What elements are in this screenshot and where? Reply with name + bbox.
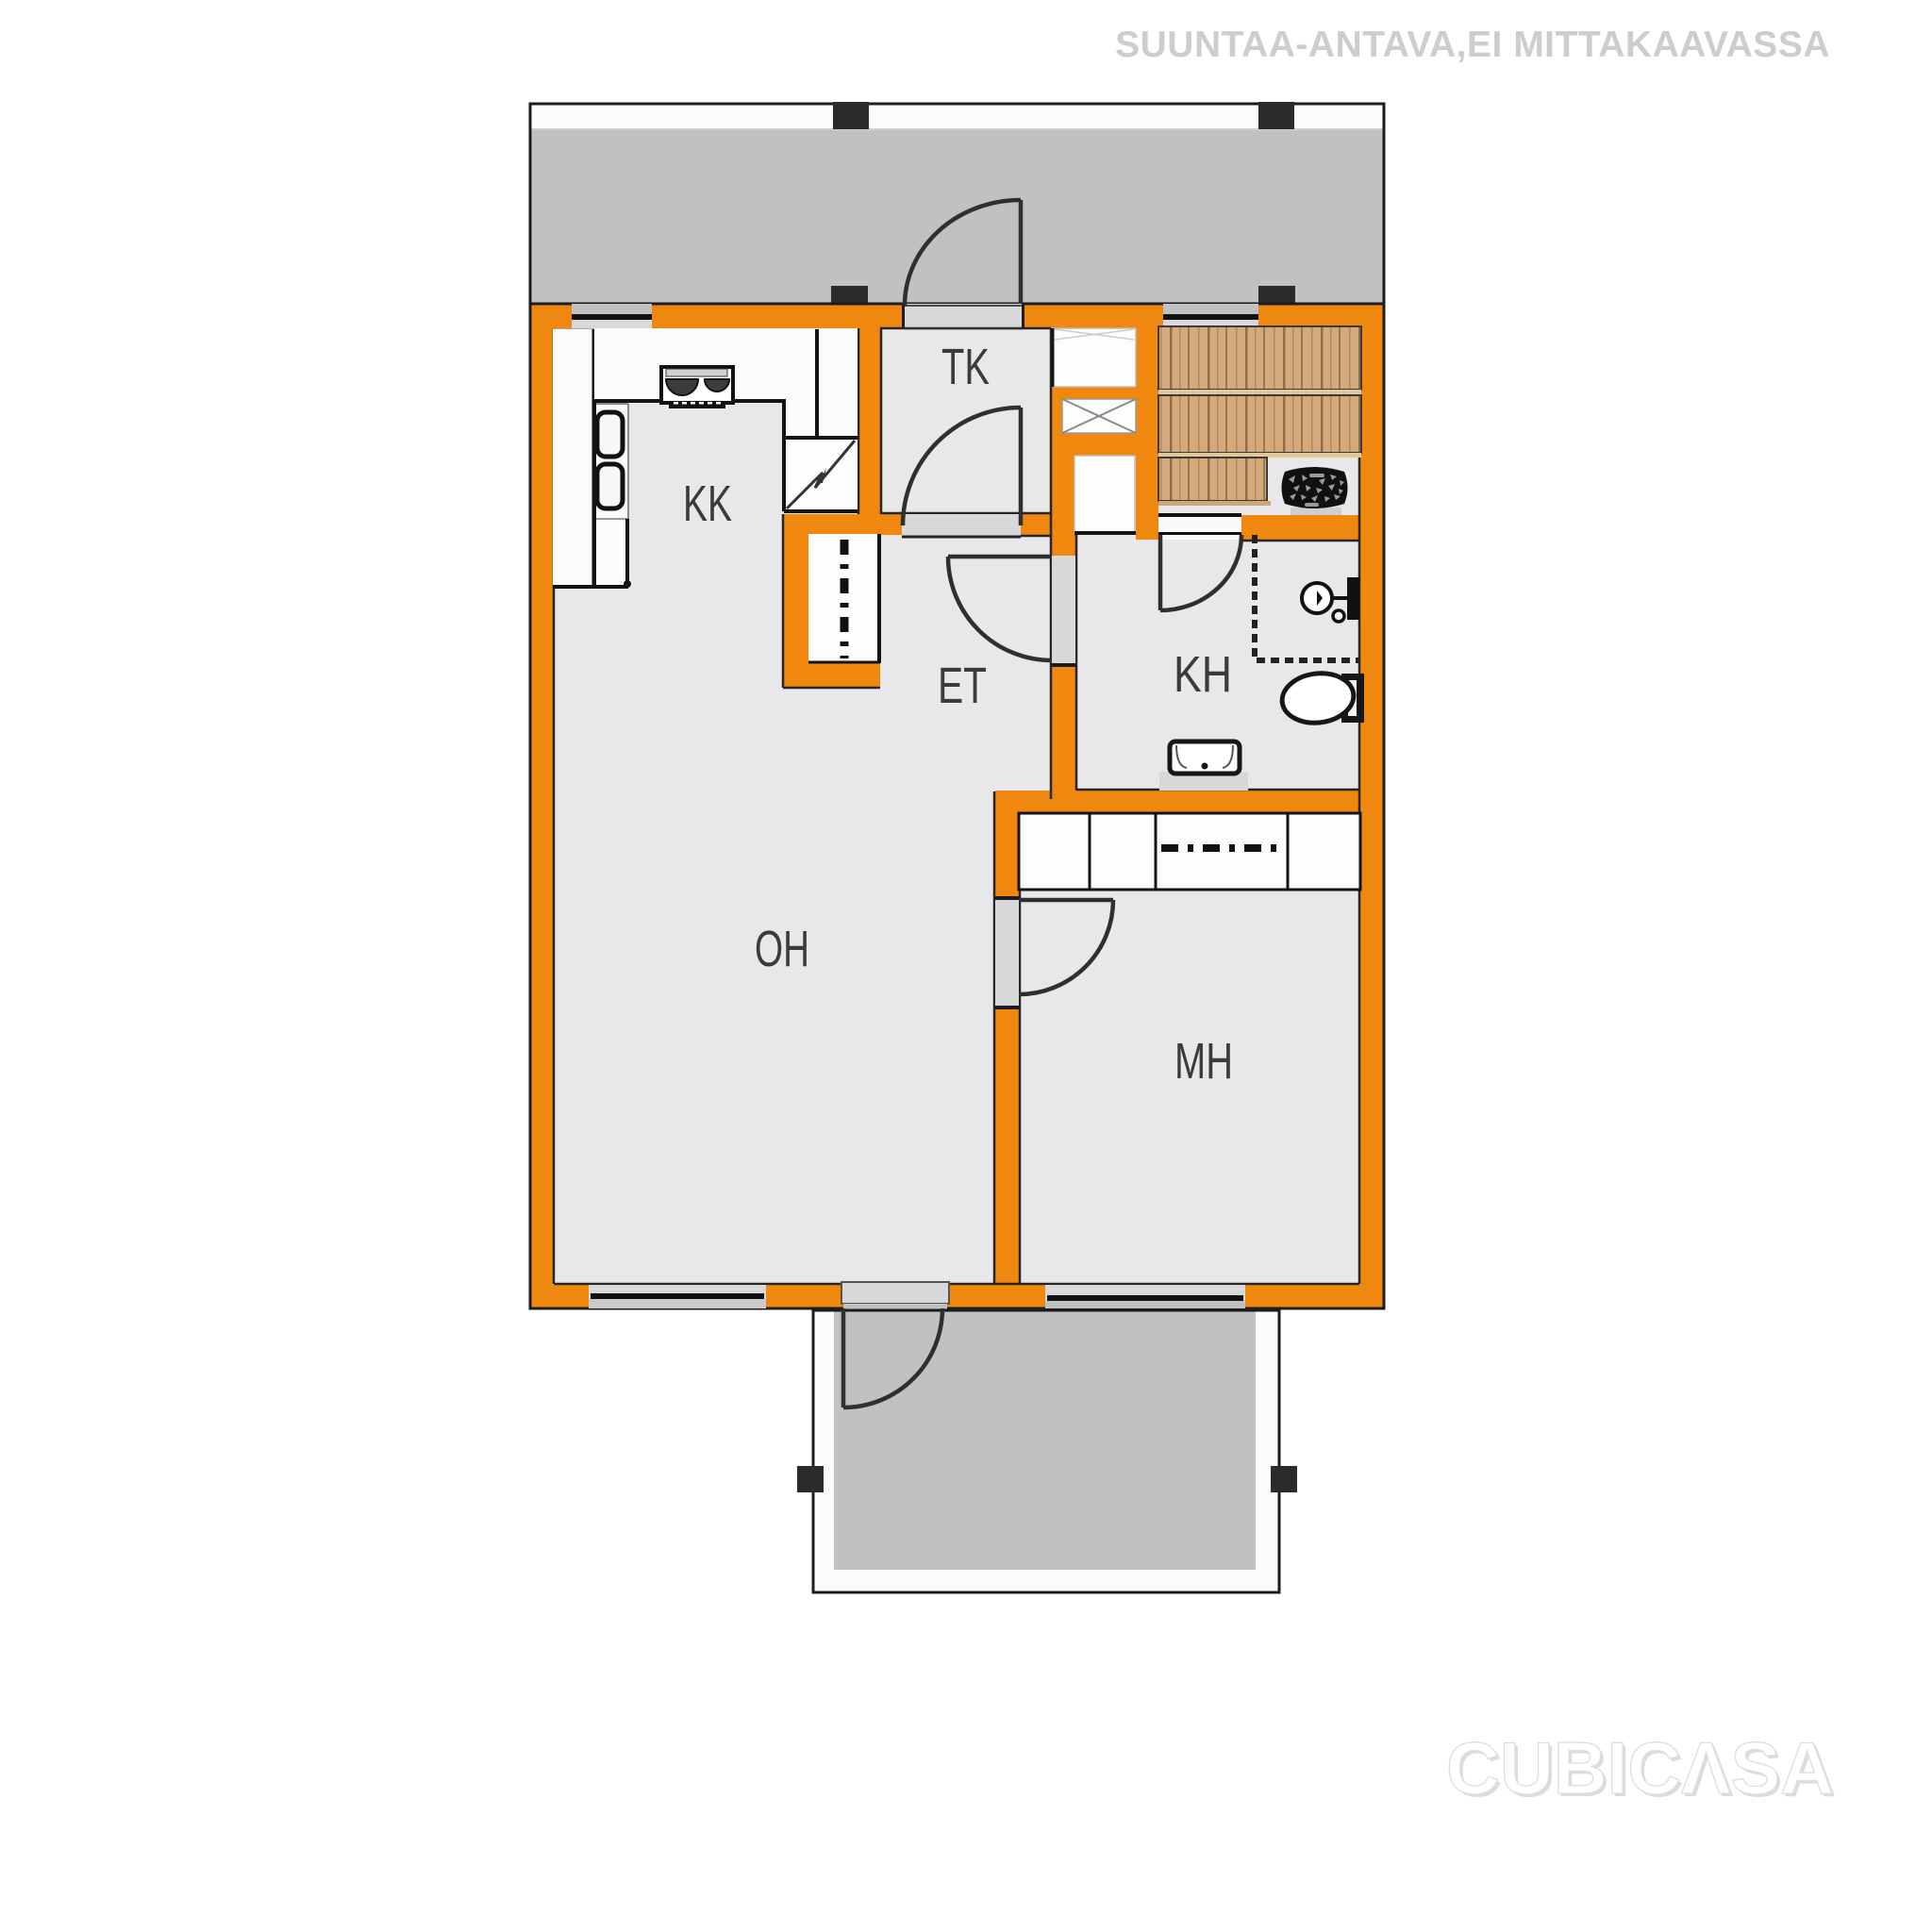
svg-text:MH: MH: [1174, 1033, 1233, 1090]
svg-text:TK: TK: [941, 339, 990, 395]
svg-text:CUBICΛSA: CUBICΛSA: [1446, 1726, 1834, 1809]
svg-text:KK: KK: [683, 475, 732, 532]
svg-text:OH: OH: [755, 921, 809, 977]
svg-text:KH: KH: [1174, 646, 1232, 703]
svg-text:ET: ET: [938, 658, 987, 714]
svg-text:SUUNTAA-ANTAVA,EI MITTAKAAVASS: SUUNTAA-ANTAVA,EI MITTAKAAVASSA: [1115, 25, 1830, 65]
